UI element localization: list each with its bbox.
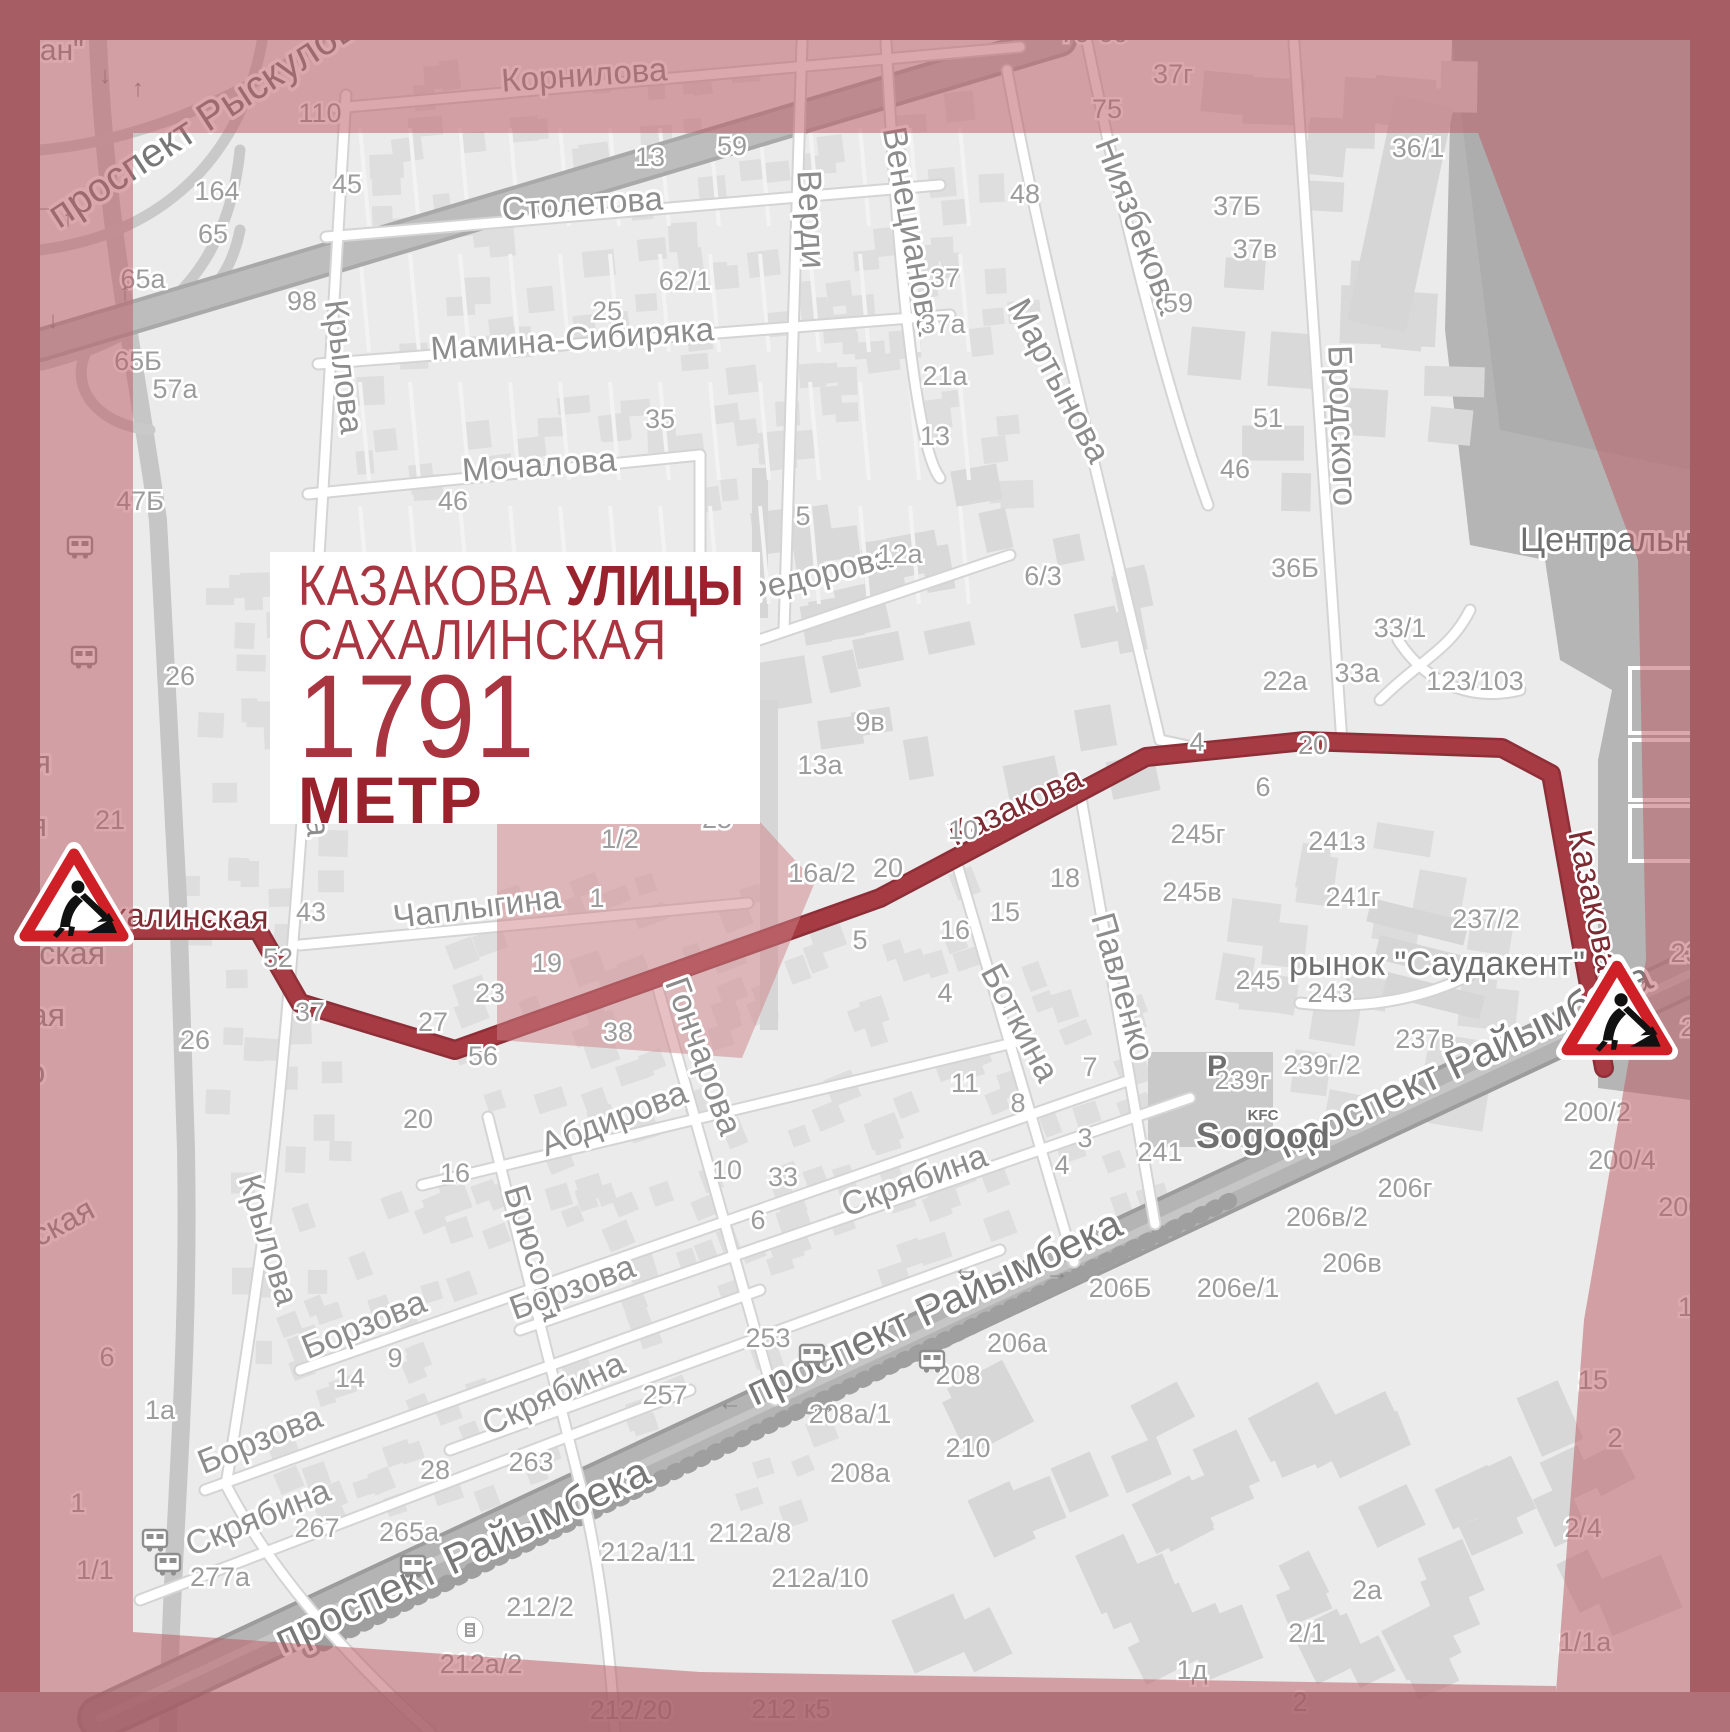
house-number: 6 xyxy=(750,1205,765,1235)
house-number: 79 xyxy=(1060,18,1090,48)
house-number: 33 xyxy=(768,1162,798,1192)
house-number: 257 xyxy=(642,1380,687,1410)
house-number: 38 xyxy=(603,1017,633,1047)
house-number: 12а xyxy=(877,539,923,569)
house-number: 48 xyxy=(1010,179,1040,209)
house-number: 6 xyxy=(99,1342,114,1372)
direction-arrow-icon: ↑ xyxy=(119,279,131,306)
bus-icon xyxy=(72,647,96,669)
house-number: 59 xyxy=(1163,288,1193,318)
house-number: 237в xyxy=(1395,1024,1454,1054)
street-label: ауран" xyxy=(0,34,84,67)
house-number: 15 xyxy=(990,897,1020,927)
house-number: 7 xyxy=(1082,1052,1097,1082)
direction-arrow-icon: ↓ xyxy=(99,62,111,89)
house-number: 37г xyxy=(1153,59,1193,89)
house-number: 6/3 xyxy=(1024,561,1062,591)
house-number: 21 xyxy=(95,805,125,835)
house-number: 13 xyxy=(920,421,950,451)
house-number: 46 xyxy=(438,486,468,516)
direction-arrow-icon: ↑ xyxy=(62,205,74,232)
house-number: 37 xyxy=(785,0,815,23)
house-number: 200/4 xyxy=(1588,1145,1656,1175)
street-label: кая xyxy=(0,807,47,843)
house-number: 33а xyxy=(1334,658,1380,688)
house-number: 10 xyxy=(712,1155,742,1185)
house-number: 212 к5 xyxy=(751,1694,830,1724)
house-number: 2а xyxy=(1352,1575,1383,1605)
house-number: 212а/11 xyxy=(600,1537,696,1567)
direction-arrow-icon: ← xyxy=(953,1255,977,1282)
direction-arrow-icon: ↓ xyxy=(18,315,30,342)
house-number: 212/2 xyxy=(506,1592,574,1622)
house-number: 35 xyxy=(645,404,675,434)
house-number: 200/2 xyxy=(1563,1097,1631,1127)
house-number: 2/1 xyxy=(1288,1618,1326,1648)
house-number: 239г/2 xyxy=(1283,1050,1360,1080)
house-number: 15 xyxy=(1578,1365,1608,1395)
house-number: 98 xyxy=(287,286,317,316)
map-canvas: проспект РыскуловаКорниловаСтолетоваМами… xyxy=(0,0,1730,1732)
bus-icon xyxy=(143,1530,167,1552)
house-number: 212а/8 xyxy=(709,1518,792,1548)
house-number: 245 xyxy=(1235,965,1280,995)
street-label: Мамина-Сибиряка xyxy=(429,310,715,367)
house-number: 1/1 xyxy=(76,1555,114,1585)
house-number: 5 xyxy=(852,925,867,955)
route-distance-value: 1791 xyxy=(298,666,714,768)
house-number: 47Б xyxy=(116,486,164,516)
house-number: 19 xyxy=(532,948,562,978)
house-number: 206г xyxy=(1378,1173,1433,1203)
building-poi-icon xyxy=(457,1617,483,1643)
house-number: 4 xyxy=(1189,727,1204,757)
house-number: 16 xyxy=(440,1158,470,1188)
route-distance-unit: МЕТР xyxy=(298,768,746,832)
house-number: 13 xyxy=(635,142,665,172)
house-number: 37 xyxy=(295,997,325,1027)
house-number: 11 xyxy=(951,1068,979,1098)
house-number: 5 xyxy=(795,501,810,531)
bus-icon xyxy=(68,537,92,559)
house-number: 20 xyxy=(873,853,903,883)
house-number: 51 xyxy=(1253,403,1283,433)
house-number: 267 xyxy=(294,1513,339,1543)
house-number: 164 xyxy=(194,176,239,206)
house-number: 18 xyxy=(1050,863,1080,893)
house-number: 8 xyxy=(1010,1088,1025,1118)
house-number: 245г xyxy=(1171,819,1226,849)
house-number: 1д xyxy=(1177,1655,1208,1685)
house-number: 21а xyxy=(922,361,968,391)
house-number: 123/103 xyxy=(1426,666,1524,696)
house-number: 52 xyxy=(263,943,293,973)
house-number: 75 xyxy=(1092,94,1122,124)
house-number: 37а xyxy=(920,309,966,339)
house-number: 26 xyxy=(165,661,195,691)
house-number: 263 xyxy=(508,1447,553,1477)
direction-arrow-icon: ↑ xyxy=(132,75,144,102)
house-number: 2/4 xyxy=(1564,1513,1602,1543)
house-number: 206в xyxy=(1322,1248,1381,1278)
house-number: 20 xyxy=(1298,730,1328,760)
poi-label: P xyxy=(1207,1050,1227,1083)
street-label: Корнилова xyxy=(500,50,669,99)
house-number: 36Б xyxy=(1271,553,1319,583)
direction-arrow-icon: → xyxy=(1045,1259,1069,1286)
house-number: 253 xyxy=(745,1323,790,1353)
street-label: ская xyxy=(0,997,65,1033)
route-streets-line1: КАЗАКОВА УЛИЦЫ xyxy=(298,558,686,614)
house-number: 10 xyxy=(948,815,978,845)
house-number: 1 xyxy=(70,1488,85,1518)
route-info-card: КАЗАКОВА УЛИЦЫ САХАЛИНСКАЯ 1791 МЕТР xyxy=(270,552,760,824)
house-number: 132а/1 xyxy=(409,0,492,21)
house-number: 60 xyxy=(1098,18,1128,48)
house-number: 20 xyxy=(403,1104,433,1134)
house-number: 110 xyxy=(298,98,341,128)
house-number: 2 xyxy=(1607,1423,1622,1453)
street-label: Бродского xyxy=(1320,345,1364,507)
house-number: 28 xyxy=(420,1455,450,1485)
house-number: 26 xyxy=(180,1025,210,1055)
street-label: ирская xyxy=(0,1191,100,1270)
house-number: 2 xyxy=(1292,1687,1307,1717)
house-number: 57а xyxy=(152,374,198,404)
house-number: 13а xyxy=(797,750,843,780)
house-number: 65Б xyxy=(114,346,162,376)
direction-arrow-icon: ← xyxy=(718,1389,742,1416)
house-number: 43 xyxy=(296,897,326,927)
direction-arrow-icon: ↓ xyxy=(47,307,59,334)
house-number: 243 xyxy=(1307,978,1352,1008)
house-number: 206а xyxy=(987,1328,1048,1358)
house-number: 212а/2 xyxy=(440,1649,523,1679)
house-number: 25 xyxy=(592,296,622,326)
house-number: 33/1 xyxy=(1374,613,1427,643)
street-label: кая xyxy=(1,744,51,780)
direction-arrow-icon: ← xyxy=(30,192,54,219)
house-number: 206Б xyxy=(1089,1273,1152,1303)
house-number: 16а/2 xyxy=(788,858,856,888)
house-number: 4 xyxy=(1054,1150,1069,1180)
house-number: 206е/1 xyxy=(1197,1273,1280,1303)
roadwork-sign xyxy=(14,842,134,946)
house-number: 37Б xyxy=(1213,191,1261,221)
house-number: 15 xyxy=(1678,1292,1708,1322)
house-number: 245в xyxy=(1162,877,1221,907)
house-number: 1 xyxy=(589,883,604,913)
house-number: 210 xyxy=(945,1433,990,1463)
house-number: 9 xyxy=(387,1343,402,1373)
street-label: ого xyxy=(0,1054,45,1090)
house-number: 4 xyxy=(937,978,952,1008)
house-number: 6 xyxy=(1255,772,1270,802)
house-number: 208а xyxy=(830,1458,891,1488)
house-number: 3 xyxy=(1077,1123,1092,1153)
house-number: 16 xyxy=(940,915,970,945)
house-number: 9в xyxy=(855,707,884,737)
house-number: 56 xyxy=(468,1041,498,1071)
house-number: 206в/2 xyxy=(1286,1202,1368,1232)
house-number: 212/20 xyxy=(590,1695,673,1725)
house-number: 237/2 xyxy=(1452,904,1520,934)
house-number: 37 xyxy=(930,263,960,293)
street-label: Павленко xyxy=(1083,909,1162,1066)
street-label: я xyxy=(19,681,36,717)
house-number: 36/1 xyxy=(1392,133,1445,163)
house-number: 62/1 xyxy=(659,266,712,296)
direction-arrow-icon: → xyxy=(813,1392,837,1419)
house-number: 65 xyxy=(198,219,228,249)
house-number: 241г xyxy=(1326,882,1381,912)
house-number: 45 xyxy=(332,169,362,199)
street-label: Центральный xyxy=(1520,521,1730,559)
house-number: 241з xyxy=(1308,826,1365,856)
house-number: 212а/10 xyxy=(771,1563,869,1593)
house-number: 23 xyxy=(475,978,505,1008)
house-number: 59 xyxy=(717,131,747,161)
house-number: 37в xyxy=(1233,234,1277,264)
house-number: 14 xyxy=(335,1363,365,1393)
house-number: 27 xyxy=(418,1007,448,1037)
house-number: 200/6 xyxy=(1658,1192,1726,1222)
house-number: 22а xyxy=(1262,666,1308,696)
road-closure-map-poster: проспект РыскуловаКорниловаСтолетоваМами… xyxy=(0,0,1730,1732)
house-number: 1а xyxy=(145,1395,176,1425)
poi-label: KFC xyxy=(1248,1107,1279,1124)
house-number: 2 xyxy=(22,1577,37,1607)
house-number: 1/1а xyxy=(1559,1627,1613,1657)
house-number: 277а xyxy=(190,1562,251,1592)
house-number: 265а xyxy=(379,1517,440,1547)
street-label: Верди xyxy=(789,169,832,269)
roadwork-sign xyxy=(1556,954,1678,1060)
house-number: 241 xyxy=(1137,1137,1182,1167)
house-number: 46 xyxy=(1220,454,1250,484)
